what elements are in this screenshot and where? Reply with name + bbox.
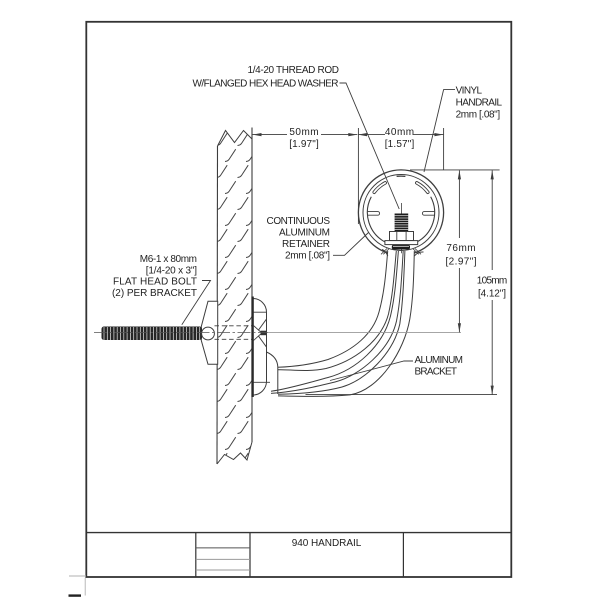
svg-text:[1.57"]: [1.57"] xyxy=(385,139,415,150)
svg-text:105mm: 105mm xyxy=(477,276,508,287)
svg-text:[1/4-20 x 3"]: [1/4-20 x 3"] xyxy=(146,265,197,276)
svg-text:BRACKET: BRACKET xyxy=(415,367,458,378)
svg-text:[1.97"]: [1.97"] xyxy=(289,139,319,150)
svg-text:M6-1 x 80mm: M6-1 x 80mm xyxy=(140,254,197,265)
svg-text:940 HANDRAIL: 940 HANDRAIL xyxy=(292,538,362,549)
svg-text:HANDRAIL: HANDRAIL xyxy=(456,98,503,109)
svg-text:ALUMINUM: ALUMINUM xyxy=(279,228,330,239)
svg-text:ALUMINUM: ALUMINUM xyxy=(415,355,464,366)
svg-text:2mm [.08"]: 2mm [.08"] xyxy=(285,251,330,262)
svg-text:76mm: 76mm xyxy=(446,243,475,254)
svg-text:2mm [.08"]: 2mm [.08"] xyxy=(456,110,501,121)
svg-text:(2) PER BRACKET: (2) PER BRACKET xyxy=(112,288,197,299)
svg-text:1/4-20 THREAD ROD: 1/4-20 THREAD ROD xyxy=(248,65,340,76)
svg-text:RETAINER: RETAINER xyxy=(282,239,330,250)
svg-text:W/FLANGED HEX HEAD WASHER: W/FLANGED HEX HEAD WASHER xyxy=(193,79,339,90)
svg-text:50mm: 50mm xyxy=(289,127,318,138)
svg-text:[2.97"]: [2.97"] xyxy=(446,257,477,268)
svg-text:FLAT HEAD BOLT: FLAT HEAD BOLT xyxy=(113,277,197,288)
svg-text:CONTINUOUS: CONTINUOUS xyxy=(267,216,331,227)
svg-text:[4.12"]: [4.12"] xyxy=(478,289,506,300)
svg-text:VINYL: VINYL xyxy=(456,86,483,97)
svg-text:40mm: 40mm xyxy=(385,127,414,138)
